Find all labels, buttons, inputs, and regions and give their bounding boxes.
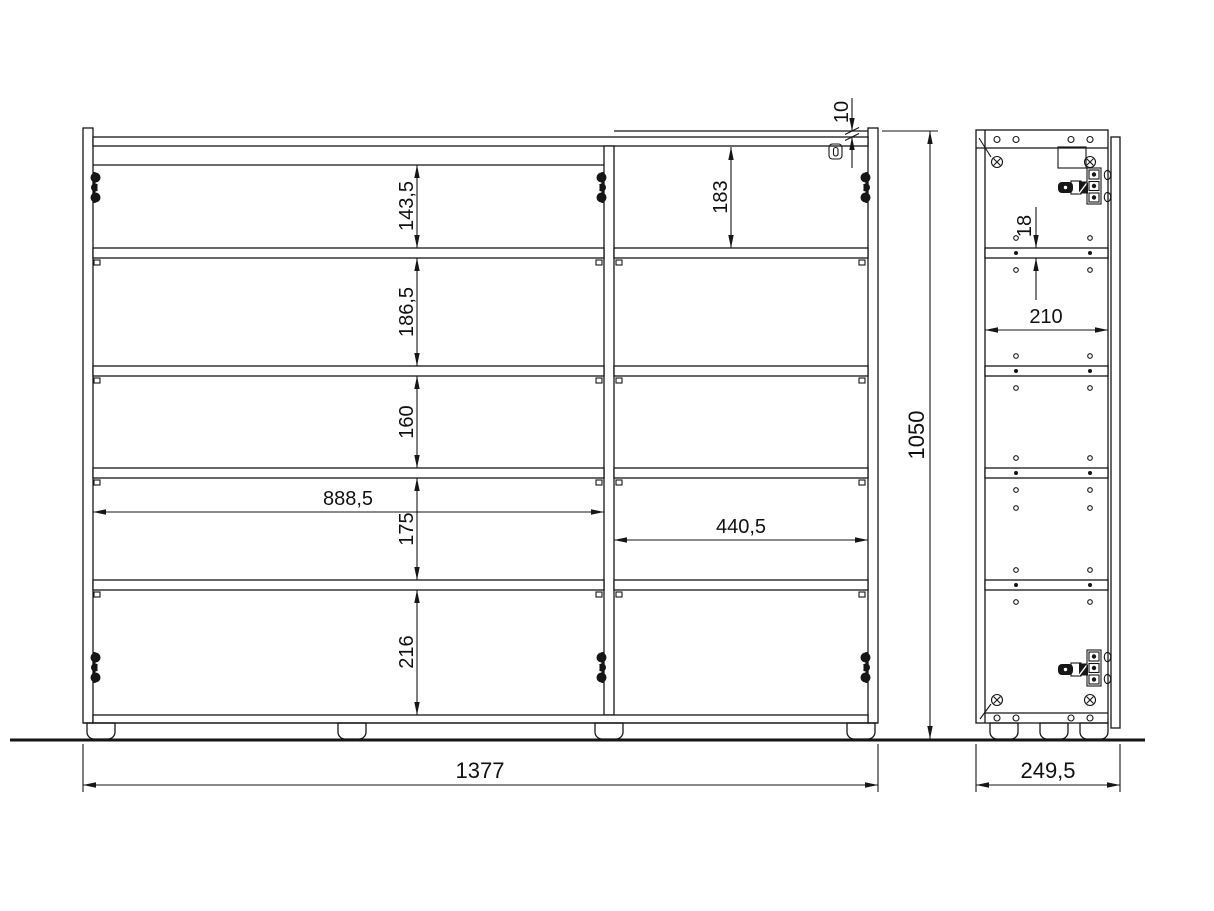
side-outline bbox=[976, 130, 1108, 723]
front-right-shelves bbox=[614, 248, 868, 590]
dim-shelf-thickness: 18 bbox=[1014, 215, 1036, 237]
front-bottom-panel bbox=[93, 715, 868, 723]
dim-overall-height: 1050 bbox=[904, 411, 929, 460]
dim-left-space-4: 175 bbox=[396, 512, 418, 545]
dim-right-top-space: 183 bbox=[710, 180, 732, 213]
dim-left-space-1: 143,5 bbox=[396, 181, 418, 231]
side-feet bbox=[990, 723, 1108, 739]
dim-left-space-5: 216 bbox=[396, 635, 418, 668]
dim-top-gap-group: 10 bbox=[831, 98, 859, 168]
front-left-shelves bbox=[93, 248, 604, 590]
front-view bbox=[83, 128, 878, 739]
dim-overall-depth: 249,5 bbox=[1020, 758, 1075, 783]
dim-left-compartment-width: 888,5 bbox=[323, 488, 373, 510]
front-center-divider bbox=[604, 146, 614, 715]
front-right-panel bbox=[868, 128, 878, 723]
front-left-panel bbox=[83, 128, 93, 723]
dim-top-gap: 10 bbox=[831, 101, 853, 123]
dim-left-space-3: 160 bbox=[396, 405, 418, 438]
technical-drawing: 143,5 186,5 160 175 216 183 10 888,5 440… bbox=[0, 0, 1214, 911]
front-top-panel bbox=[93, 137, 868, 146]
side-door-edge bbox=[1111, 137, 1120, 728]
side-view bbox=[976, 130, 1120, 739]
dim-overall-width: 1377 bbox=[456, 758, 505, 783]
shelf-support-pins bbox=[94, 260, 865, 597]
dim-interior-depth: 210 bbox=[1029, 306, 1062, 328]
dim-left-space-2: 186,5 bbox=[396, 287, 418, 337]
dim-right-compartment-width: 440,5 bbox=[716, 516, 766, 538]
front-feet bbox=[87, 723, 875, 739]
